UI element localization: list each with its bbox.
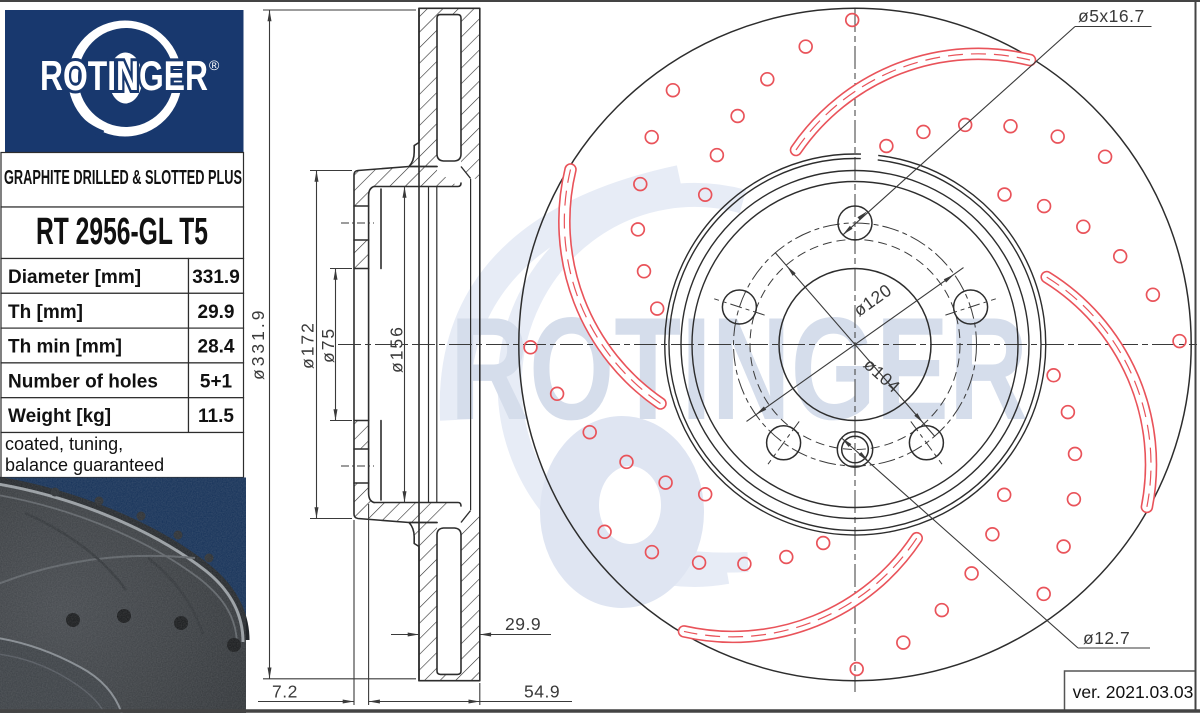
svg-text:29.9: 29.9 bbox=[505, 614, 541, 634]
svg-text:Number of holes: Number of holes bbox=[8, 371, 158, 392]
svg-text:coated, tuning,: coated, tuning, bbox=[5, 434, 123, 454]
svg-text:11.5: 11.5 bbox=[198, 406, 234, 427]
svg-text:ø12.7: ø12.7 bbox=[1083, 628, 1130, 648]
svg-text:RT 2956-GL T5: RT 2956-GL T5 bbox=[36, 211, 208, 253]
svg-text:Weight [kg]: Weight [kg] bbox=[8, 406, 111, 427]
svg-text:54.9: 54.9 bbox=[524, 682, 560, 702]
svg-text:29.9: 29.9 bbox=[198, 302, 235, 323]
svg-text:28.4: 28.4 bbox=[198, 337, 235, 358]
svg-text:Diameter [mm]: Diameter [mm] bbox=[8, 267, 141, 288]
svg-text:GRAPHITE DRILLED & SLOTTED PLU: GRAPHITE DRILLED & SLOTTED PLUS bbox=[4, 167, 242, 189]
svg-text:balance guaranteed: balance guaranteed bbox=[5, 455, 164, 475]
svg-text:ø5x16.7: ø5x16.7 bbox=[1078, 6, 1145, 26]
svg-text:ø156: ø156 bbox=[387, 325, 407, 373]
svg-text:ø172: ø172 bbox=[298, 321, 318, 369]
svg-text:Th min [mm]: Th min [mm] bbox=[8, 337, 122, 358]
svg-text:7.2: 7.2 bbox=[272, 682, 298, 702]
svg-text:5+1: 5+1 bbox=[200, 371, 233, 392]
svg-text:ø75: ø75 bbox=[318, 327, 338, 363]
svg-text:ø331.9: ø331.9 bbox=[248, 308, 268, 380]
svg-text:331.9: 331.9 bbox=[192, 267, 240, 288]
svg-text:ROTINGER: ROTINGER bbox=[450, 287, 1028, 450]
svg-text:ROTINGER: ROTINGER bbox=[40, 52, 208, 99]
svg-text:®: ® bbox=[209, 57, 220, 73]
svg-text:ver. 2021.03.03: ver. 2021.03.03 bbox=[1073, 682, 1194, 702]
svg-text:Th [mm]: Th [mm] bbox=[8, 302, 83, 323]
